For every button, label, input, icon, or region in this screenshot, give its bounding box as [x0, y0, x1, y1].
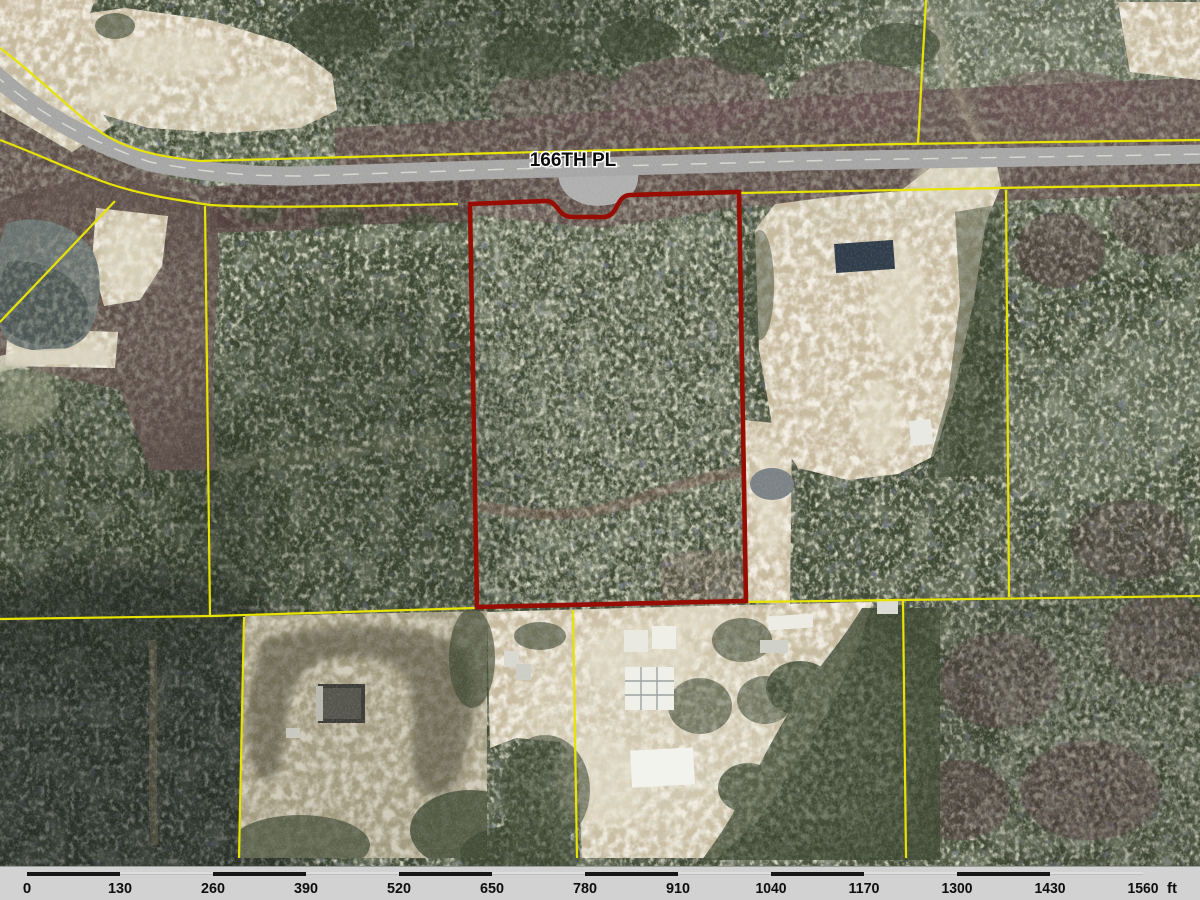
svg-text:1300: 1300	[942, 880, 973, 897]
svg-text:1040: 1040	[756, 880, 787, 897]
svg-text:520: 520	[387, 880, 411, 897]
svg-text:780: 780	[573, 880, 597, 897]
svg-text:390: 390	[294, 880, 318, 897]
svg-text:0: 0	[23, 880, 31, 897]
svg-text:166TH PL: 166TH PL	[530, 150, 617, 171]
svg-text:260: 260	[201, 880, 225, 897]
svg-text:1430: 1430	[1035, 880, 1066, 897]
svg-text:1170: 1170	[849, 880, 880, 897]
svg-text:650: 650	[480, 880, 504, 897]
svg-text:ft: ft	[1167, 880, 1177, 897]
svg-text:130: 130	[108, 880, 132, 897]
svg-text:910: 910	[666, 880, 690, 897]
svg-text:1560: 1560	[1128, 880, 1159, 897]
